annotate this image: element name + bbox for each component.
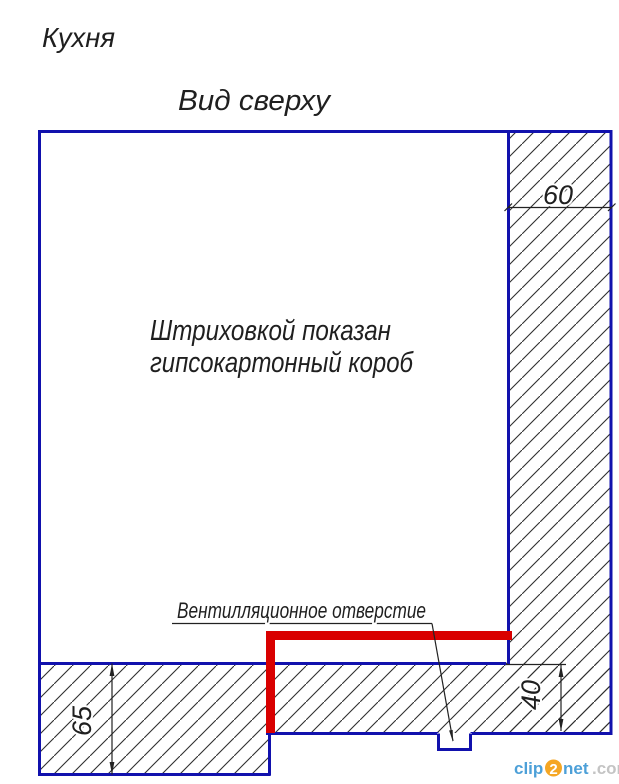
dim-65-text: 65 [67,705,97,736]
watermark-net: net [563,759,589,778]
dim-40-text: 40 [516,680,546,710]
hatch-note-line2: гипсокартонный короб [150,347,414,379]
watermark-com: .com [592,759,619,778]
hatch-note-line1: Штриховкой показан [150,315,391,347]
vent-label: Вентилляционное отверстие [177,598,426,623]
gypsum-box-hatched-areas [38,130,612,776]
room-title: Кухня [42,22,115,53]
dim-60-text: 60 [543,180,573,210]
kitchen-plan-drawing: 60 65 40 Кухня Вид сверху Штриховкой пок… [0,0,619,784]
watermark: clip 2 net .com [514,759,619,778]
right-wall-box-hatch [507,130,612,734]
watermark-2: 2 [549,761,557,778]
watermark-clip: clip [514,759,543,778]
view-title: Вид сверху [178,85,332,117]
